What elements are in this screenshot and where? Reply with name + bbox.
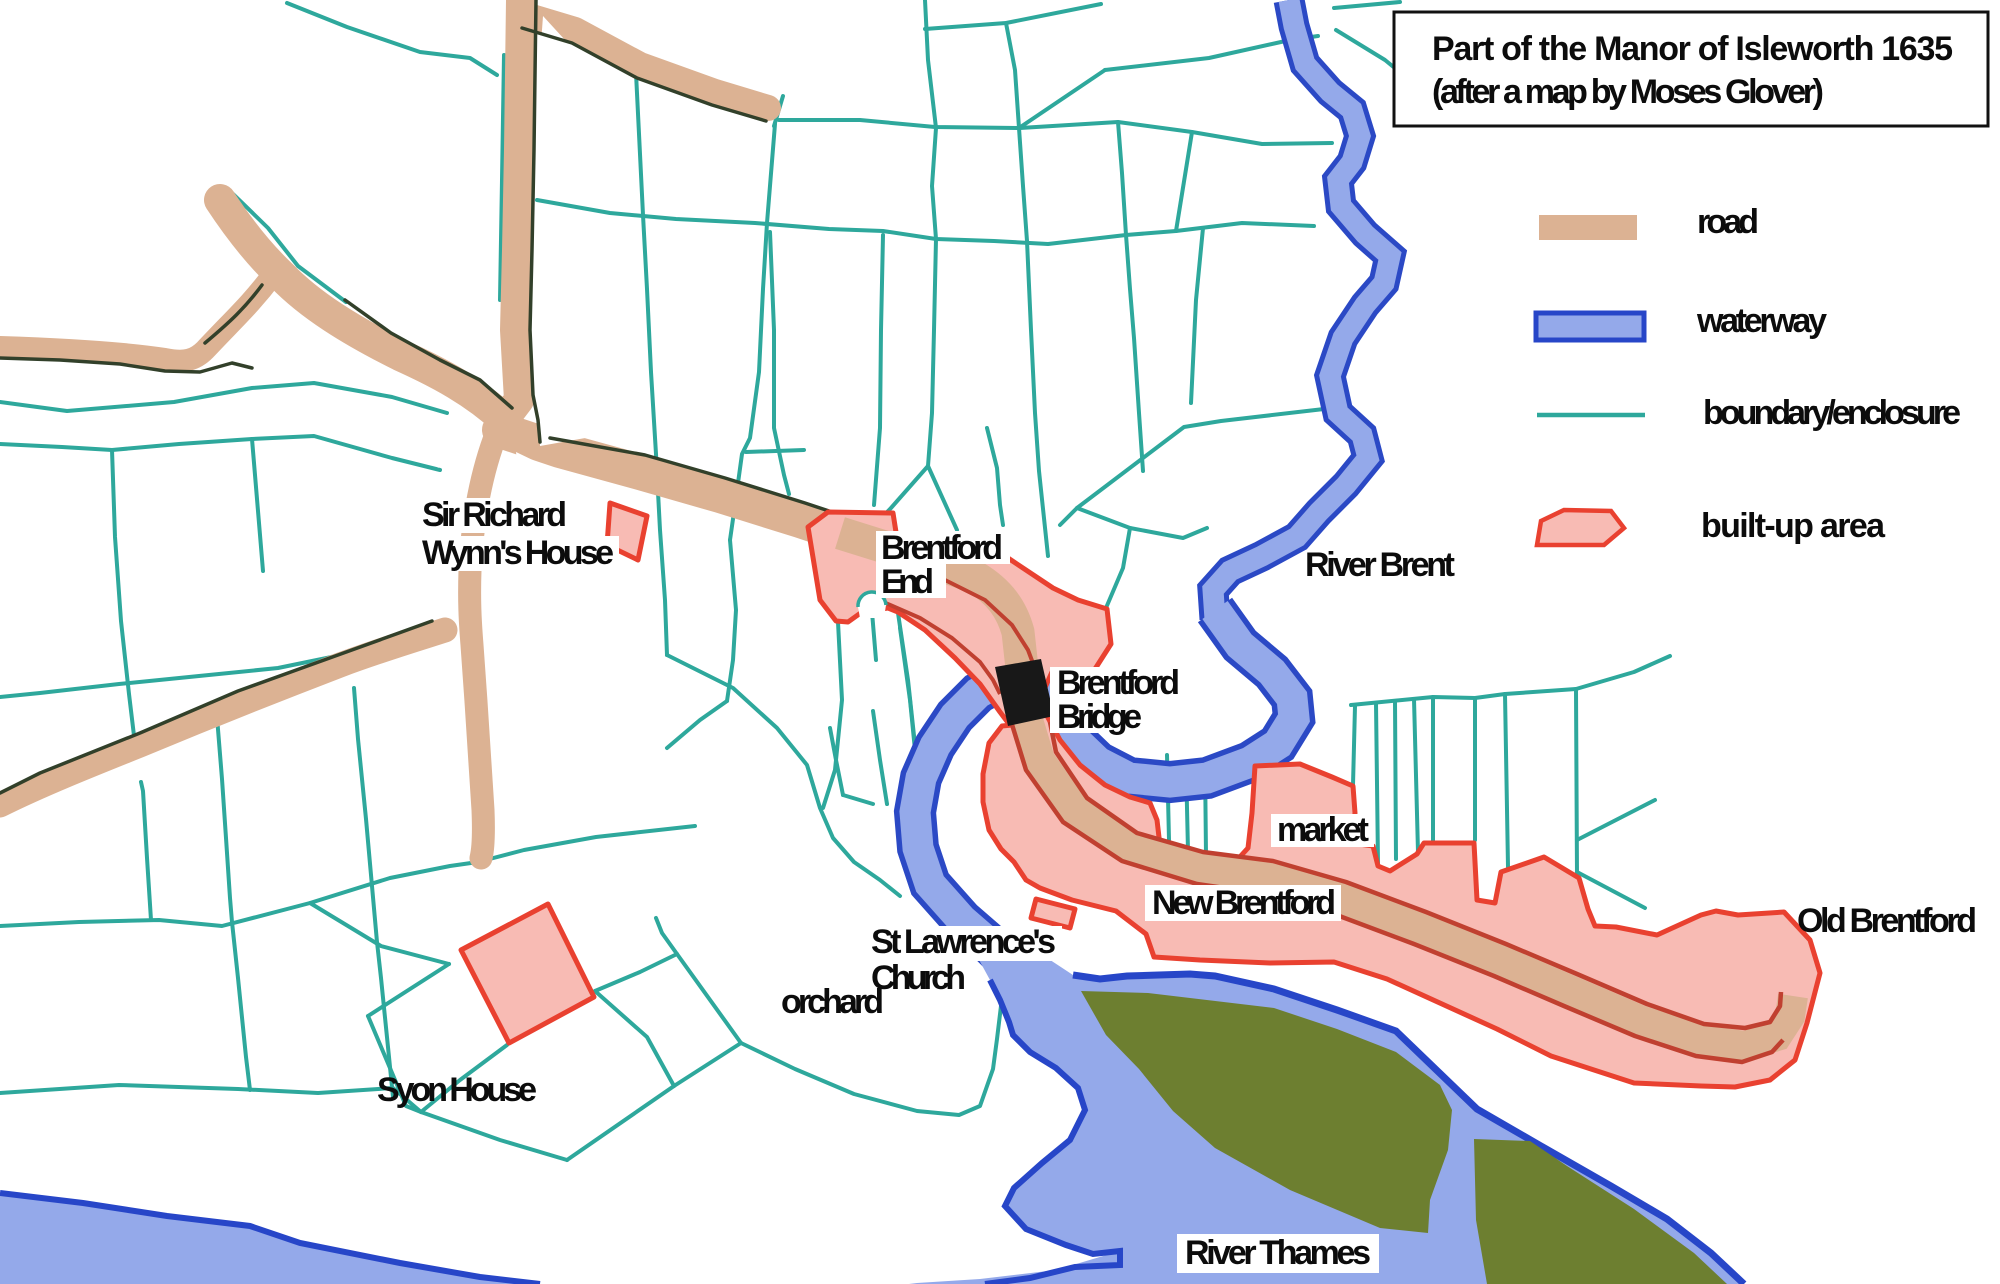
svg-text:Bridge: Bridge xyxy=(1057,698,1142,736)
svg-text:Sir Richard: Sir Richard xyxy=(422,496,567,534)
svg-text:Brentford: Brentford xyxy=(1057,664,1180,702)
svg-text:built-up area: built-up area xyxy=(1701,507,1886,545)
svg-text:Wynn's House: Wynn's House xyxy=(422,534,614,572)
svg-text:waterway: waterway xyxy=(1696,302,1827,340)
svg-text:Part of the Manor of Isleworth: Part of the Manor of Isleworth 1635 xyxy=(1432,30,1953,68)
svg-text:Brentford: Brentford xyxy=(881,529,1003,567)
svg-text:Old Brentford: Old Brentford xyxy=(1797,902,1977,940)
svg-text:Syon House: Syon House xyxy=(377,1071,537,1109)
svg-text:River Thames: River Thames xyxy=(1185,1234,1371,1272)
svg-text:orchard: orchard xyxy=(781,983,884,1021)
svg-text:St Lawrence's: St Lawrence's xyxy=(871,923,1056,961)
svg-text:boundary/enclosure: boundary/enclosure xyxy=(1703,394,1961,432)
svg-text:road: road xyxy=(1697,203,1759,241)
svg-text:market: market xyxy=(1277,811,1369,849)
svg-text:New Brentford: New Brentford xyxy=(1152,884,1336,922)
svg-text:Church: Church xyxy=(871,959,966,997)
svg-text:River Brent: River Brent xyxy=(1305,546,1455,584)
svg-text:End: End xyxy=(881,563,934,601)
svg-text:(after a map by Moses Glover): (after a map by Moses Glover) xyxy=(1432,73,1824,111)
